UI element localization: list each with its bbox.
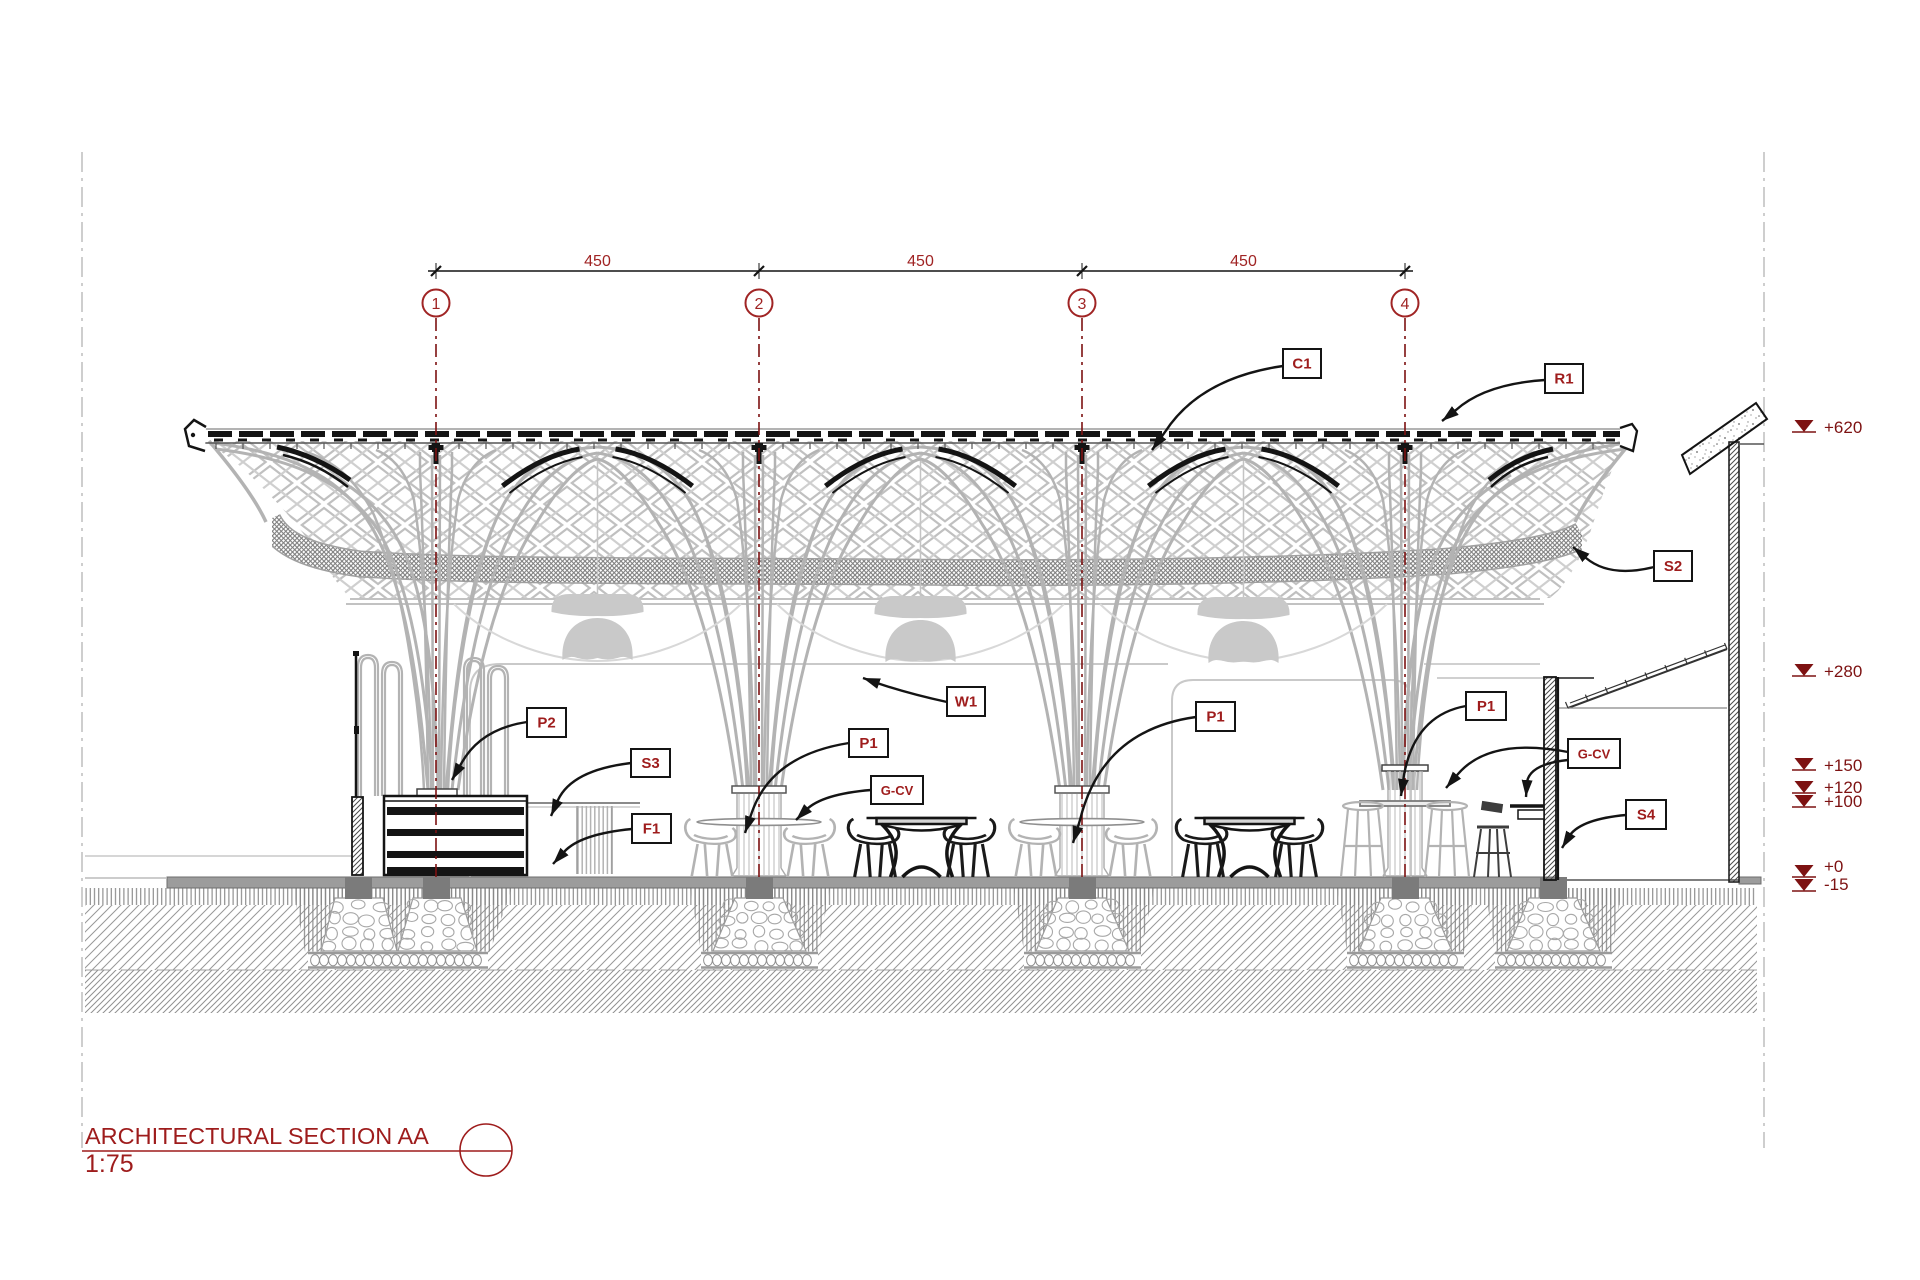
svg-text:+0: +0 xyxy=(1824,857,1843,876)
svg-text:S3: S3 xyxy=(641,755,659,772)
svg-text:3: 3 xyxy=(1078,296,1087,313)
svg-text:P1: P1 xyxy=(1477,698,1495,715)
svg-text:1: 1 xyxy=(432,296,441,313)
svg-text:P2: P2 xyxy=(537,715,555,732)
svg-text:-15: -15 xyxy=(1824,875,1849,894)
svg-text:+280: +280 xyxy=(1824,662,1862,681)
svg-text:W1: W1 xyxy=(955,694,978,711)
svg-text:ARCHITECTURAL SECTION AA: ARCHITECTURAL SECTION AA xyxy=(85,1123,429,1149)
svg-text:4: 4 xyxy=(1401,296,1410,313)
svg-text:450: 450 xyxy=(907,253,934,270)
svg-text:P1: P1 xyxy=(859,735,877,752)
svg-text:450: 450 xyxy=(1230,253,1257,270)
svg-text:S2: S2 xyxy=(1664,558,1682,575)
svg-text:C1: C1 xyxy=(1292,356,1311,373)
svg-text:+620: +620 xyxy=(1824,418,1862,437)
svg-text:G-CV: G-CV xyxy=(1578,747,1611,762)
svg-text:1:75: 1:75 xyxy=(85,1150,134,1178)
svg-text:G-CV: G-CV xyxy=(881,783,914,798)
svg-text:+100: +100 xyxy=(1824,792,1862,811)
svg-text:F1: F1 xyxy=(643,821,661,838)
svg-text:2: 2 xyxy=(755,296,764,313)
svg-text:R1: R1 xyxy=(1554,371,1573,388)
svg-text:P1: P1 xyxy=(1206,709,1224,726)
svg-text:+150: +150 xyxy=(1824,756,1862,775)
svg-text:S4: S4 xyxy=(1637,807,1656,824)
svg-text:450: 450 xyxy=(584,253,611,270)
